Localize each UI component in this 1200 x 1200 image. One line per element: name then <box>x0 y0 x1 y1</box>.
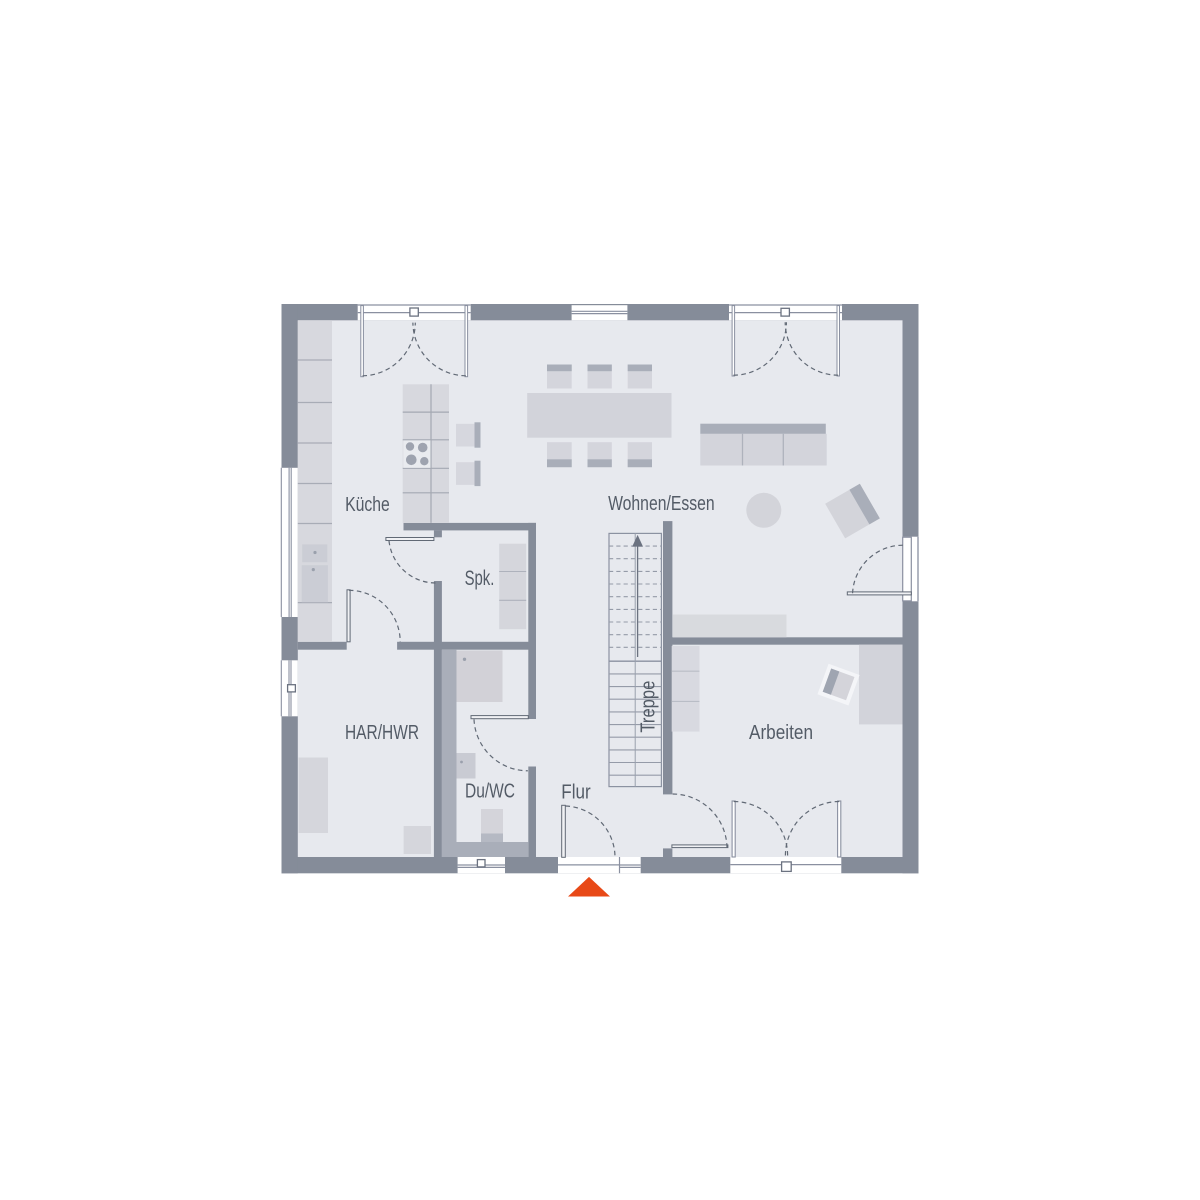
svg-text:Flur: Flur <box>561 781 591 804</box>
svg-text:Du/WC: Du/WC <box>465 780 515 803</box>
svg-text:Treppe: Treppe <box>637 681 660 733</box>
svg-text:Arbeiten: Arbeiten <box>749 721 813 744</box>
svg-text:HAR/HWR: HAR/HWR <box>345 721 419 744</box>
svg-text:Küche: Küche <box>345 493 390 516</box>
svg-text:Wohnen/Essen: Wohnen/Essen <box>608 492 715 515</box>
svg-text:Spk.: Spk. <box>465 566 495 590</box>
